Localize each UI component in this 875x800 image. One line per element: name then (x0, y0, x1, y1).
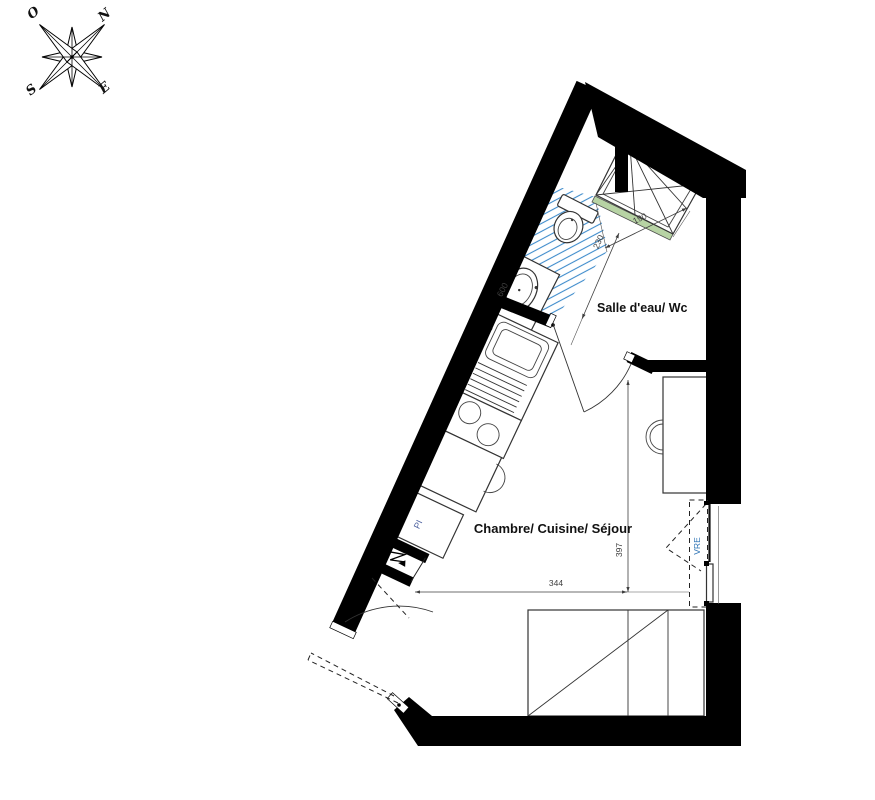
window-casement (707, 564, 714, 602)
bathroom-door-stub-wall (648, 360, 706, 372)
door-swing-arc (584, 364, 631, 412)
room-label-main: Chambre/ Cuisine/ Séjour (474, 521, 632, 536)
dim-room-depth: 397 (614, 543, 624, 557)
compass-label-west: O (25, 4, 44, 23)
floor-plan-drawing: O N S E (0, 0, 875, 800)
door-leaf (553, 324, 584, 412)
bathroom-door (551, 323, 631, 412)
door-leaf-dashed (308, 660, 398, 703)
compass-label-south: S (23, 82, 40, 100)
bed (528, 610, 704, 716)
floor-plan-page: O N S E (0, 0, 875, 800)
chair (646, 420, 663, 454)
desk (646, 377, 708, 493)
door-hinge (397, 703, 401, 707)
room-label-bathroom: Salle d'eau/ Wc (597, 301, 688, 315)
dim-room-width: 344 (549, 578, 563, 588)
shutter-label: VRE (692, 537, 702, 555)
right-wall-upper (706, 168, 741, 504)
window: VRE (666, 500, 719, 607)
compass-rose: O N S E (23, 4, 115, 100)
compass-label-north: N (95, 5, 115, 25)
